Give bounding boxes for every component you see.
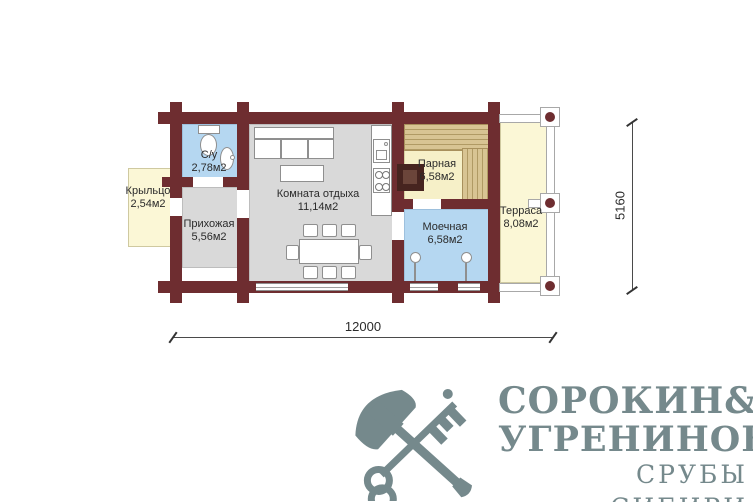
door-lounge-washing bbox=[392, 212, 404, 240]
dimension-line-horizontal bbox=[173, 337, 553, 338]
dimension-height-value: 5160 bbox=[613, 184, 628, 228]
room-label-steam: Парная 6,58м2 bbox=[407, 158, 467, 184]
log-end-icon bbox=[545, 281, 555, 291]
floor-plan-page: Крыльцо 2,54м2 С/у 2,78м2 Прихожая 5,56м… bbox=[0, 0, 753, 502]
room-name: Парная bbox=[407, 158, 467, 171]
room-label-terrace: Терраса 8,08м2 bbox=[491, 205, 551, 231]
terrace-post-top bbox=[540, 107, 560, 127]
room-name: Комната отдыха bbox=[258, 188, 378, 201]
room-area: 6,58м2 bbox=[415, 234, 475, 247]
kitchen-sink-bowl bbox=[376, 150, 387, 160]
room-name: Моечная bbox=[415, 221, 475, 234]
logo-tagline: СРУБЫ СИБИРИ bbox=[498, 458, 748, 502]
chair bbox=[322, 224, 337, 237]
chair bbox=[303, 224, 318, 237]
chair bbox=[322, 266, 337, 279]
log-end-icon bbox=[545, 112, 555, 122]
room-area: 5,56м2 bbox=[177, 231, 241, 244]
room-label-bathroom: С/у 2,78м2 bbox=[184, 149, 234, 175]
burner-icon bbox=[382, 171, 390, 179]
room-label-porch: Крыльцо 2,54м2 bbox=[121, 185, 175, 211]
burner-icon bbox=[382, 183, 390, 191]
sofa-cushion bbox=[254, 139, 281, 159]
room-area: 2,78м2 bbox=[184, 162, 234, 175]
chair bbox=[286, 245, 299, 260]
sauna-bench-top bbox=[404, 124, 490, 151]
room-label-lounge: Комната отдыха 11,14м2 bbox=[258, 188, 378, 214]
dining-table bbox=[299, 239, 359, 264]
room-name: Терраса bbox=[491, 205, 551, 218]
company-logo-text: СОРОКИН & УГРЕНИНОВ СРУБЫ СИБИРИ bbox=[498, 381, 748, 502]
room-area: 11,14м2 bbox=[258, 201, 378, 214]
sofa-cushion bbox=[281, 139, 308, 159]
room-area: 6,58м2 bbox=[407, 171, 467, 184]
logo-line-1: СОРОКИН & bbox=[498, 381, 748, 421]
chair bbox=[341, 224, 356, 237]
room-area: 8,08м2 bbox=[491, 218, 551, 231]
axe-and-key-logo-icon bbox=[343, 377, 495, 501]
door-bathroom bbox=[193, 177, 223, 187]
wall-steam-washing bbox=[392, 199, 500, 209]
terrace-post-bottom bbox=[540, 276, 560, 296]
logo-name-word1: СОРОКИН bbox=[498, 381, 724, 421]
window-washing-2 bbox=[458, 283, 480, 291]
shower-pipe bbox=[414, 263, 416, 281]
wall-top bbox=[158, 112, 499, 124]
shower-pipe bbox=[465, 263, 467, 281]
dimension-width-value: 12000 bbox=[318, 319, 408, 334]
shower-icon bbox=[410, 252, 421, 263]
logo-line-2: УГРЕНИНОВ bbox=[498, 421, 748, 458]
room-label-hallway: Прихожая 5,56м2 bbox=[177, 218, 241, 244]
window-lounge bbox=[256, 283, 348, 291]
room-name: С/у bbox=[184, 149, 234, 162]
room-name: Прихожая bbox=[177, 218, 241, 231]
sofa-cushion bbox=[308, 139, 334, 159]
room-area: 2,54м2 bbox=[121, 198, 175, 211]
door-hallway-lounge bbox=[237, 190, 249, 218]
kitchen-faucet-icon bbox=[384, 142, 388, 146]
toilet-tank-icon bbox=[198, 125, 220, 134]
dimension-line-vertical bbox=[632, 122, 633, 291]
sofa-back bbox=[254, 127, 334, 139]
room-label-washing: Моечная 6,58м2 bbox=[415, 221, 475, 247]
door-steam-washing bbox=[413, 199, 441, 209]
chair bbox=[303, 266, 318, 279]
chair bbox=[359, 245, 372, 260]
coffee-table bbox=[280, 165, 324, 182]
window-washing-1 bbox=[410, 283, 438, 291]
chair bbox=[341, 266, 356, 279]
logo-ampersand: & bbox=[724, 381, 753, 421]
shower-icon bbox=[461, 252, 472, 263]
room-name: Крыльцо bbox=[121, 185, 175, 198]
